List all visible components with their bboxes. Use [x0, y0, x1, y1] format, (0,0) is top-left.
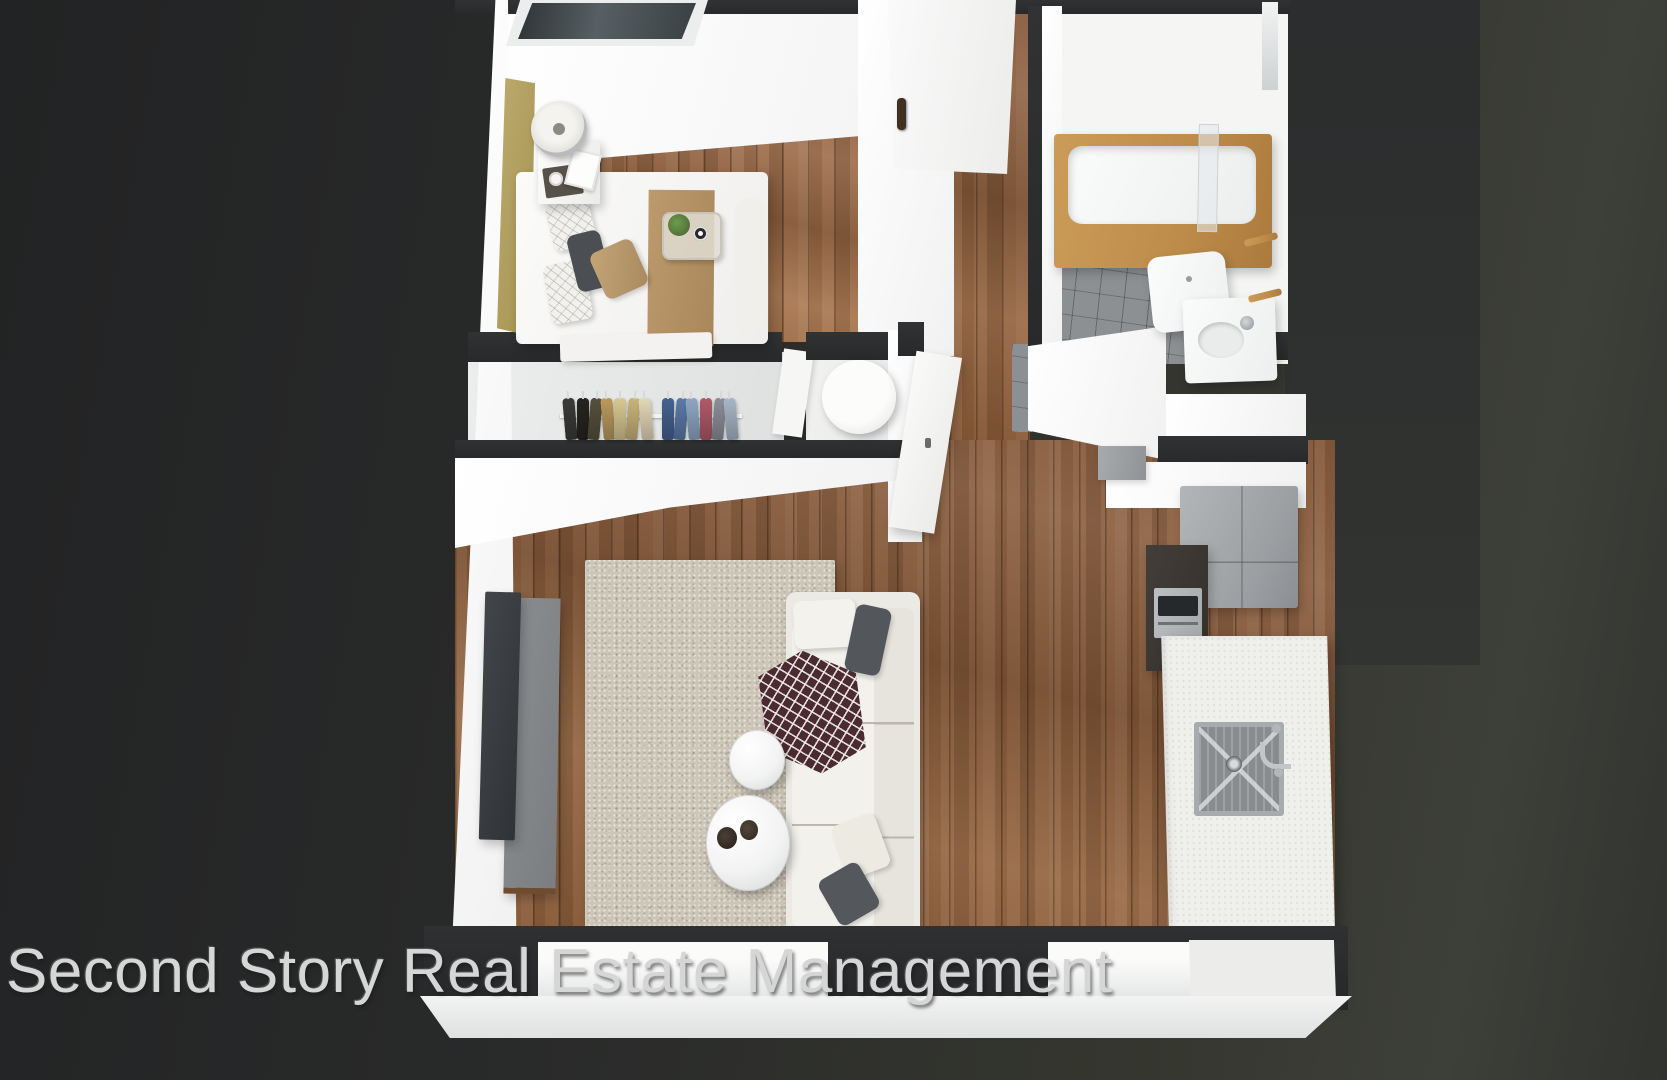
bed-side-cushion — [735, 198, 765, 330]
tray-plant — [668, 214, 690, 236]
vanity-basin — [1198, 322, 1244, 358]
nightstand-cup — [549, 172, 563, 186]
bathroom-window-slit — [1262, 2, 1278, 90]
vanity-faucet — [1240, 316, 1254, 330]
range-hood — [1098, 446, 1146, 480]
hanging-clothing-item — [686, 398, 702, 441]
hanging-clothing-item — [562, 398, 578, 441]
bedroom-south-wall-top-2 — [806, 332, 888, 360]
water-heater — [822, 360, 896, 434]
faucet-handle-1 — [1272, 724, 1281, 733]
oven-window — [1158, 596, 1198, 616]
tv — [479, 592, 521, 841]
utility-door-handle — [925, 438, 931, 448]
floor-plan-render: { "watermark": { "text": "Second Story R… — [0, 0, 1667, 1080]
tray-coffee-cup — [693, 226, 708, 241]
hanging-clothing-item — [600, 398, 616, 441]
oven-handle — [1158, 622, 1198, 625]
hanging-clothing-item — [700, 398, 712, 440]
coffee-cup-dark-1 — [717, 827, 737, 849]
kitchen-nw-wall-face — [1166, 394, 1306, 438]
faucet-handle-2 — [1274, 768, 1283, 777]
sink-drain — [1226, 756, 1242, 772]
entry-door — [888, 0, 1016, 174]
sink-faucet — [1260, 742, 1291, 769]
clothes-rack — [560, 390, 742, 444]
bed-bench — [560, 332, 713, 362]
shower-screen — [1197, 124, 1219, 232]
toilet-lid-button — [1186, 276, 1192, 282]
table-lamp-finial — [553, 123, 565, 135]
coffee-cup-dark-2 — [740, 820, 758, 840]
watermark-text: Second Story Real Estate Management — [6, 936, 1113, 1007]
bedroom-window-glass — [518, 3, 696, 39]
sofa-pillow-white-top — [793, 598, 857, 649]
bathtub-basin — [1068, 146, 1256, 224]
hanging-clothing-item — [662, 398, 674, 440]
hanging-clothing-item — [614, 398, 626, 440]
hanging-clothing-item — [638, 398, 654, 441]
coffee-table-small — [729, 730, 785, 790]
kitchen-north-wall-top — [1158, 436, 1308, 464]
entry-door-handle — [897, 98, 906, 130]
hanging-clothing-item — [723, 398, 739, 441]
kitchen-counter-foot — [1189, 940, 1336, 1002]
